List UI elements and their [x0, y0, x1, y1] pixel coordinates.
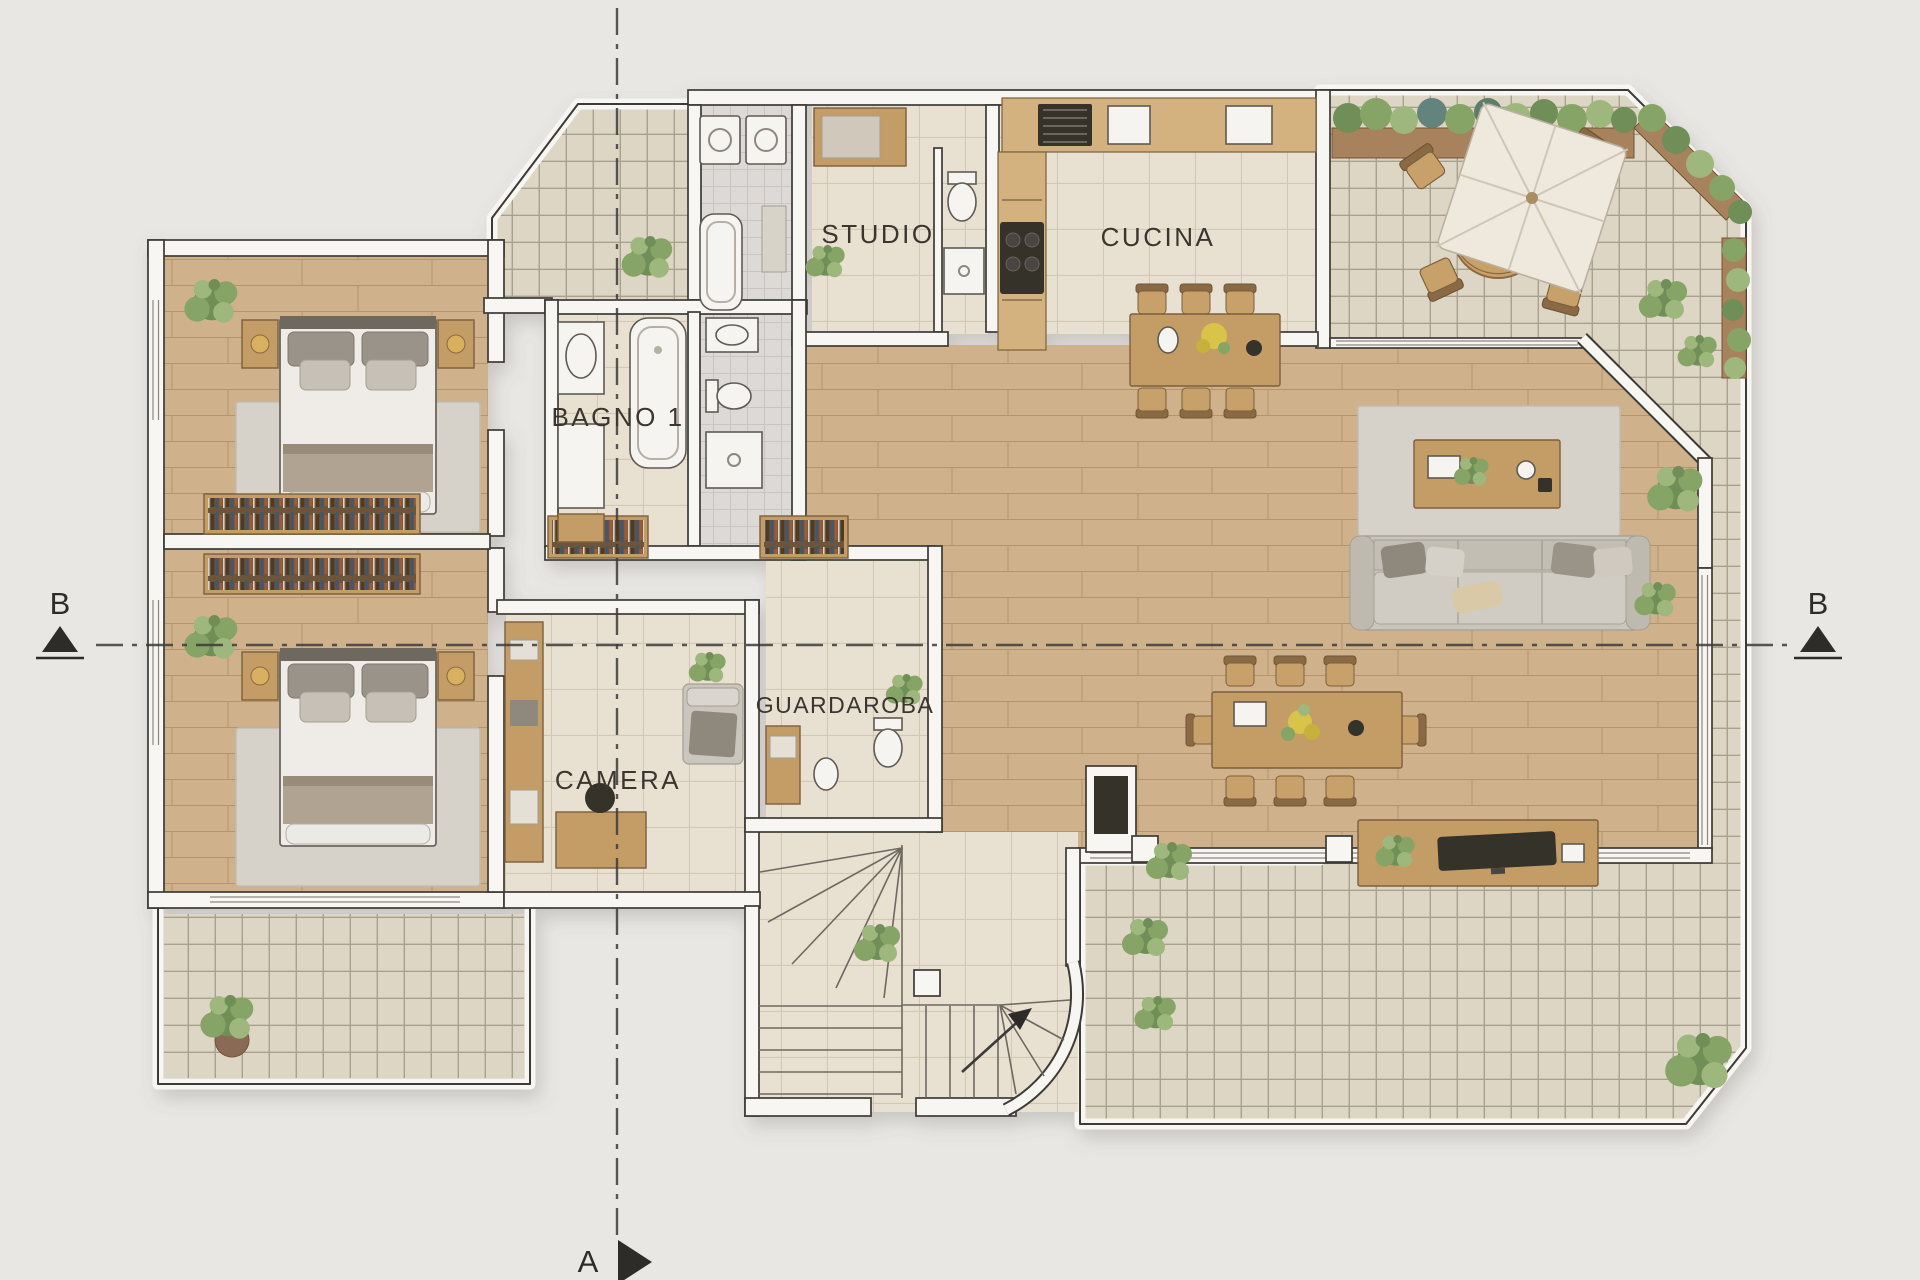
sofa — [1350, 536, 1650, 630]
room-label-guardaroba: GUARDAROBA — [756, 692, 935, 718]
room-label-cucina: CUCINA — [1101, 222, 1216, 252]
fireplace — [1094, 776, 1128, 834]
monitor — [1437, 831, 1557, 871]
coffee-table — [1414, 440, 1560, 508]
desk-area — [1358, 820, 1598, 886]
plan-body: STUDIO CUCINA BAGNO 1 CAMERA GUARDAROBA — [148, 90, 1752, 1124]
section-letter: B — [50, 586, 71, 621]
room-label-studio: STUDIO — [821, 219, 934, 249]
section-letter: A — [578, 1244, 599, 1279]
section-letter: B — [1808, 586, 1829, 621]
floor-plan: STUDIO CUCINA BAGNO 1 CAMERA GUARDAROBA … — [0, 0, 1920, 1280]
floor-plan-page: STUDIO CUCINA BAGNO 1 CAMERA GUARDAROBA … — [0, 0, 1920, 1280]
balcony-bottom-left — [158, 908, 530, 1084]
